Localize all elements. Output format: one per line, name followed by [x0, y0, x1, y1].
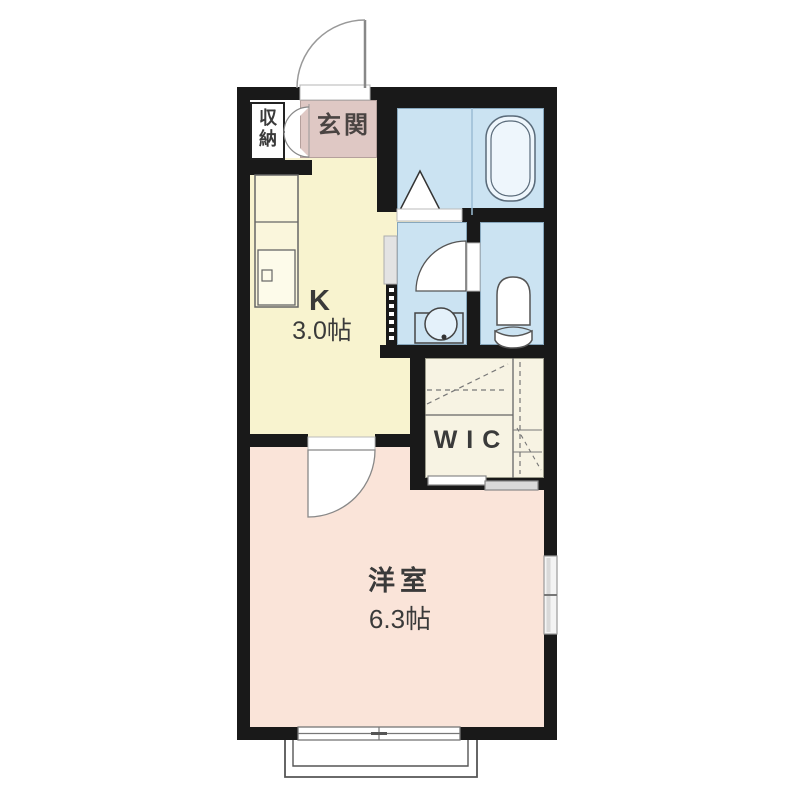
wic-sliding-door-right [485, 481, 538, 490]
storage-label: 収納 [258, 108, 276, 150]
kitchen-size: 3.0帖 [274, 319, 370, 344]
bathtub [486, 116, 535, 201]
bath-door-triangle [400, 171, 440, 210]
kitchen-label: K [272, 287, 367, 316]
washroom-sink-bowl [425, 308, 457, 340]
toilet-bowl [497, 277, 530, 325]
balcony-outline-outer [285, 740, 477, 777]
fixtures-layer [0, 0, 800, 800]
western-room-size: 6.3帖 [340, 606, 460, 632]
storage-door-arc-bottom [284, 132, 309, 157]
western-room-label: 洋室 [340, 568, 460, 595]
entry-door-opening [300, 85, 370, 100]
bath-door-sill [397, 209, 462, 221]
washroom-opening [384, 236, 397, 284]
toilet-seat-line [495, 327, 532, 331]
entrance-label: 玄関 [308, 114, 380, 138]
wic-dashed-diagonal [427, 364, 508, 404]
washroom-drain [442, 335, 447, 340]
western-door-sill [308, 437, 375, 451]
balcony-outline-inner [293, 740, 468, 766]
floorplan-canvas: 収納 玄関 K 3.0帖 WIC 洋室 6.3帖 [0, 0, 800, 800]
washroom-door-arc [416, 241, 466, 291]
entry-door-arc [297, 20, 365, 88]
storage-door-arc-top [284, 107, 309, 132]
western-door-arc [308, 450, 375, 517]
toilet-door-opening [467, 243, 480, 291]
wic-label: WIC [423, 428, 520, 453]
wic-sliding-door-left [428, 476, 486, 485]
toilet-tank [495, 331, 532, 348]
